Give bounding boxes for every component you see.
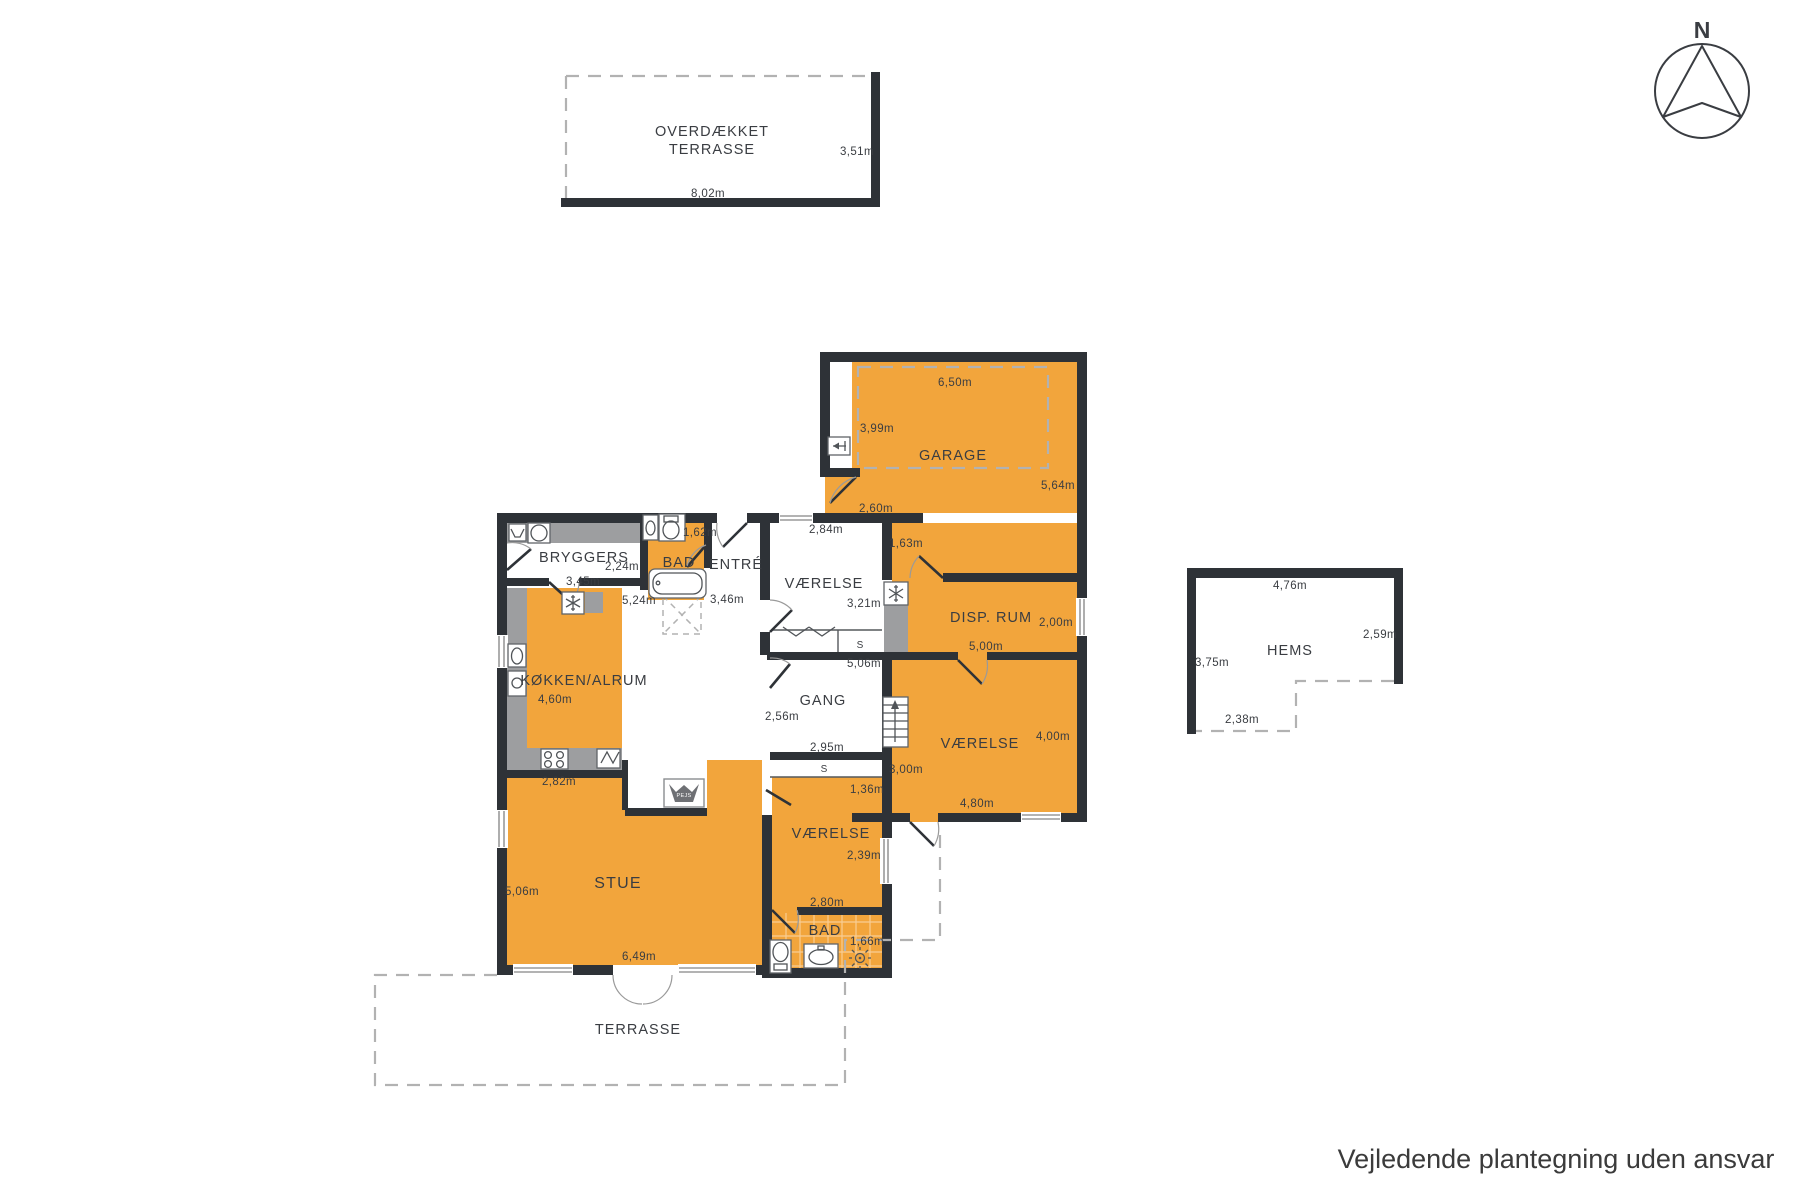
wall (820, 352, 1087, 362)
wall (987, 652, 1077, 660)
freezer-icon (884, 582, 908, 605)
toilet-icon (659, 514, 685, 541)
hems-depth-left: 3,75m (1195, 657, 1229, 669)
hems-label: HEMS (1267, 643, 1313, 659)
bathroom-sink-icon (643, 515, 658, 540)
vaerelse-bottom-width: 2,80m (810, 897, 844, 909)
gang-label: GANG (800, 693, 847, 709)
garage-entry-width: 2,60m (859, 503, 893, 515)
disp-rum-depth: 2,00m (1039, 617, 1073, 629)
stairs-icon (883, 697, 908, 747)
bryggers-width: 3,45m (566, 576, 600, 588)
vaerelse-right-depth: 4,00m (1036, 731, 1070, 743)
bad-entre-label: BAD (663, 555, 696, 571)
bryggers-depth: 2,24m (605, 561, 639, 573)
stue-upper-fill (707, 760, 762, 777)
wall (820, 468, 860, 477)
koekken-depth: 4,60m (538, 694, 572, 706)
hems: HEMS 4,76m 2,59m 3,75m 2,38m (1187, 568, 1403, 734)
window (495, 635, 508, 668)
vaerelse-right-label: VÆRELSE (941, 736, 1020, 752)
compass-needle-icon (1663, 46, 1741, 117)
bathtub-icon (649, 569, 706, 598)
toilet-icon (770, 940, 791, 973)
hatch-icon (597, 749, 620, 768)
fireplace-icon: PEJS (664, 779, 704, 807)
window (1076, 598, 1088, 636)
wall (507, 578, 549, 586)
garage-door-icon (828, 437, 850, 455)
window (495, 810, 508, 848)
koekken-label: KØKKEN/ALRUM (520, 673, 647, 689)
door (507, 543, 531, 570)
floor-plan-page: OVERDÆKKET TERRASSE 8,02m 3,51m N (0, 0, 1800, 1200)
wall (882, 523, 892, 580)
fridge-icon (562, 592, 584, 614)
wall (1187, 568, 1403, 578)
vaerelse-bottom-depth: 2,39m (847, 850, 881, 862)
window (779, 512, 813, 524)
wall (1077, 352, 1087, 822)
window (880, 838, 893, 884)
disclaimer-text: Vejledende plantegning uden ansvar (1338, 1144, 1775, 1174)
vaerelse-top-depth: 3,21m (847, 598, 881, 610)
wall (760, 632, 770, 655)
stue-width: 6,49m (622, 951, 656, 963)
wall (943, 573, 1077, 582)
covered-terrace-depth: 3,51m (840, 146, 874, 158)
covered-terrace: OVERDÆKKET TERRASSE 8,02m 3,51m (561, 72, 880, 207)
vaerelse-top-width: 2,84m (809, 524, 843, 536)
floor-plan-drawing: OVERDÆKKET TERRASSE 8,02m 3,51m N (0, 0, 1800, 1200)
compass-north-label: N (1694, 17, 1711, 43)
skylight-cross (663, 596, 701, 634)
kitchen-sink-icon (508, 644, 526, 667)
garage-label: GARAGE (919, 448, 987, 464)
bad-bottom-width: 1,66m (850, 936, 884, 948)
bathroom-sink-icon (804, 944, 838, 968)
covered-terrace-label-2: TERRASSE (669, 142, 755, 158)
hall-cabinet (884, 605, 908, 653)
door (770, 600, 792, 632)
koekken-length: 5,24m (622, 595, 656, 607)
laundry-sink-icon (509, 524, 526, 541)
bryggers-counter (507, 522, 640, 543)
entre-label: ENTRÉ (709, 556, 763, 573)
wall (747, 513, 780, 523)
closet-hanger-icon (783, 627, 835, 636)
window (678, 964, 756, 976)
wall (497, 965, 515, 975)
compass-circle (1655, 44, 1749, 138)
vaerelse-right-niche: 1,36m (850, 784, 884, 796)
bad-entre-width: 1,62m (683, 527, 717, 539)
wall (852, 813, 910, 822)
wall (622, 760, 628, 810)
door (770, 658, 790, 688)
covered-terrace-width: 8,02m (691, 188, 725, 200)
window (1021, 812, 1061, 823)
gang-length-top: 5,06m (847, 658, 881, 670)
garage-width: 6,50m (938, 377, 972, 389)
compass: N (1655, 17, 1749, 138)
hems-width-top: 4,76m (1273, 580, 1307, 592)
wall (1187, 568, 1196, 734)
gang-length-bottom: 2,95m (810, 742, 844, 754)
hall-niche-width: 1,63m (889, 538, 923, 550)
vaerelse-bottom-fill (772, 777, 882, 908)
terrasse-label: TERRASSE (595, 1022, 681, 1038)
entre-depth: 3,46m (710, 594, 744, 606)
stue-label: STUE (594, 875, 641, 892)
kitchen-left-counter (507, 588, 527, 748)
bad-bottom-label: BAD (809, 923, 842, 939)
koekken-width-bottom: 2,82m (542, 776, 576, 788)
window (513, 964, 573, 976)
hems-width-bottom: 2,38m (1225, 714, 1259, 726)
garage-depth-left: 3,99m (860, 423, 894, 435)
wall (573, 965, 613, 975)
kitchen-top-cabinet (585, 592, 603, 613)
stue-depth: 5,06m (505, 886, 539, 898)
fireplace-label: PEJS (677, 793, 692, 799)
double-door (613, 975, 672, 1004)
stove-icon (541, 749, 568, 769)
vaerelse-right-width: 4,80m (960, 798, 994, 810)
door (717, 523, 747, 547)
disp-rum-width: 5,00m (969, 641, 1003, 653)
wall (625, 808, 707, 816)
wall (1394, 568, 1403, 684)
closet-label: S (857, 640, 864, 651)
vaerelse-right-depth-left: 3,00m (889, 764, 923, 776)
covered-terrace-label-1: OVERDÆKKET (655, 124, 769, 140)
closet-label: S (821, 764, 828, 775)
gang-width: 2,56m (765, 711, 799, 723)
washing-machine-icon (528, 523, 550, 543)
room-fills (507, 362, 1077, 978)
disp-rum-label: DISP. RUM (950, 610, 1032, 626)
vaerelse-top-label: VÆRELSE (785, 576, 864, 592)
vaerelse-bottom-label: VÆRELSE (792, 826, 871, 842)
garage-depth-right: 5,64m (1041, 480, 1075, 492)
wall (497, 513, 507, 975)
hems-depth-right: 2,59m (1363, 629, 1397, 641)
door (910, 822, 939, 846)
wall (871, 72, 880, 207)
